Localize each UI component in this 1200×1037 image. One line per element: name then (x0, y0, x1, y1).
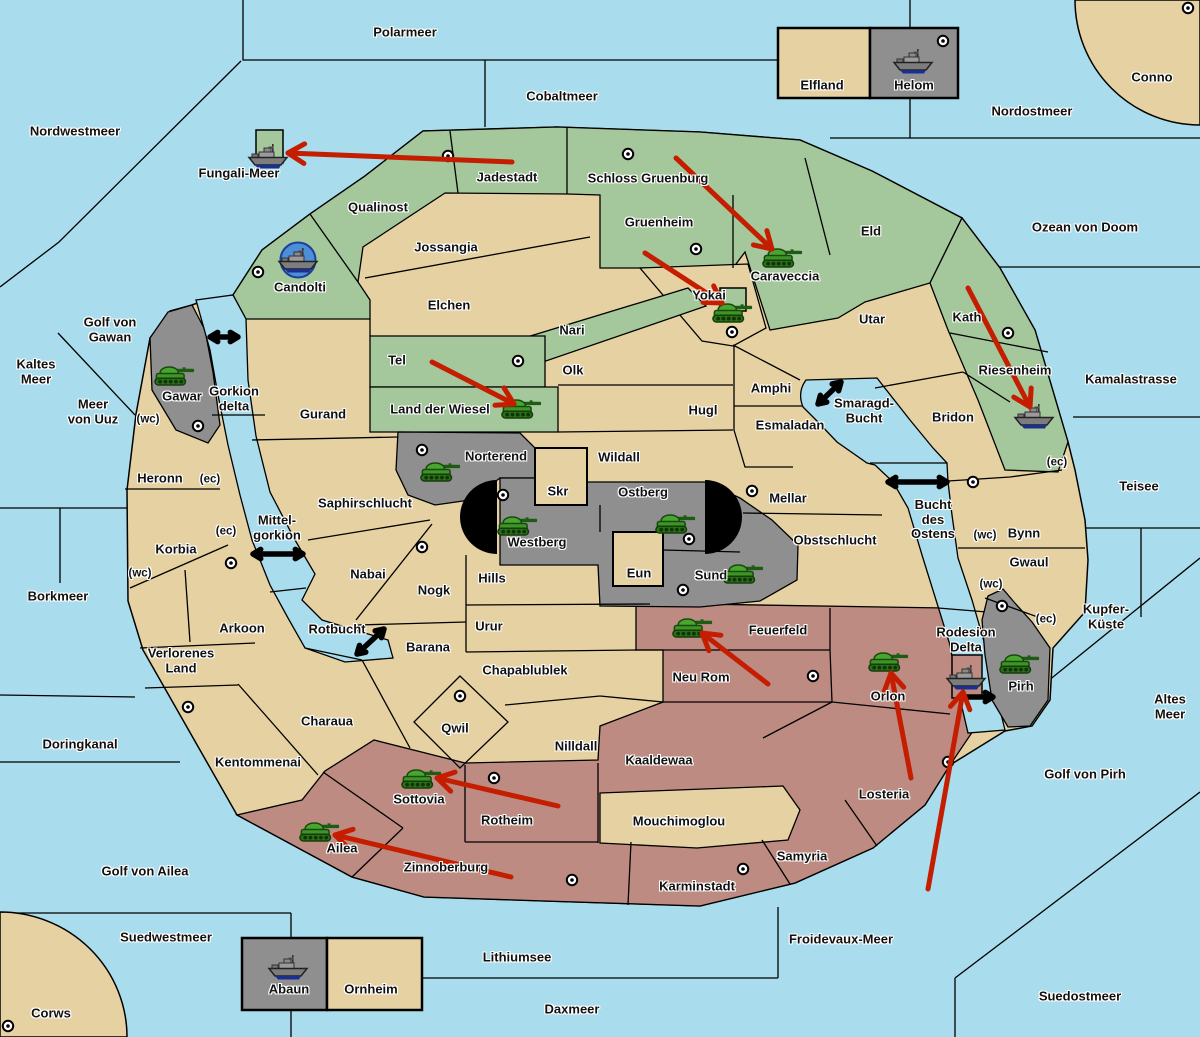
supply-center-candolti (253, 267, 263, 277)
supply-center-westberg (498, 490, 508, 500)
map-canvas[interactable] (0, 0, 1200, 1037)
supply-center-tel (513, 356, 523, 366)
supply-center-conno (1183, 3, 1193, 13)
supply-center-nabai (417, 542, 427, 552)
supply-center-qwil (455, 691, 465, 701)
supply-center-bynn (968, 477, 978, 487)
supply-center-kath (1003, 328, 1013, 338)
supply-center-zinnoberburg (567, 875, 577, 885)
supply-center-schloss-gruenburg (623, 149, 633, 159)
supply-center-mellar (747, 486, 757, 496)
box-abaun-ornheim (242, 938, 422, 1010)
supply-center-norterend (417, 445, 427, 455)
supply-center-pirh (997, 601, 1007, 611)
territory-elfland[interactable] (778, 28, 870, 98)
supply-center-corws (3, 1021, 13, 1031)
supply-center-sund (678, 585, 688, 595)
supply-center-rotheim (489, 773, 499, 783)
supply-center-karminstadt (738, 864, 748, 874)
territory-eun[interactable] (613, 532, 663, 586)
supply-center-neu-rom (808, 671, 818, 681)
territory-skr[interactable] (535, 448, 587, 505)
supply-center-gruenheim (691, 244, 701, 254)
supply-center-verlorenes-land (183, 702, 193, 712)
supply-center-ostberg (684, 534, 694, 544)
territory-mouchimoglou[interactable] (600, 786, 800, 848)
supply-center-gawar (193, 421, 203, 431)
supply-center-helom (938, 36, 948, 46)
territory-ornheim[interactable] (327, 938, 422, 1010)
supply-center-korbia (226, 558, 236, 568)
supply-center-yokai (727, 327, 737, 337)
game-map[interactable]: PolarmeerCobaltmeerNordostmeerConnoNordw… (0, 0, 1200, 1037)
